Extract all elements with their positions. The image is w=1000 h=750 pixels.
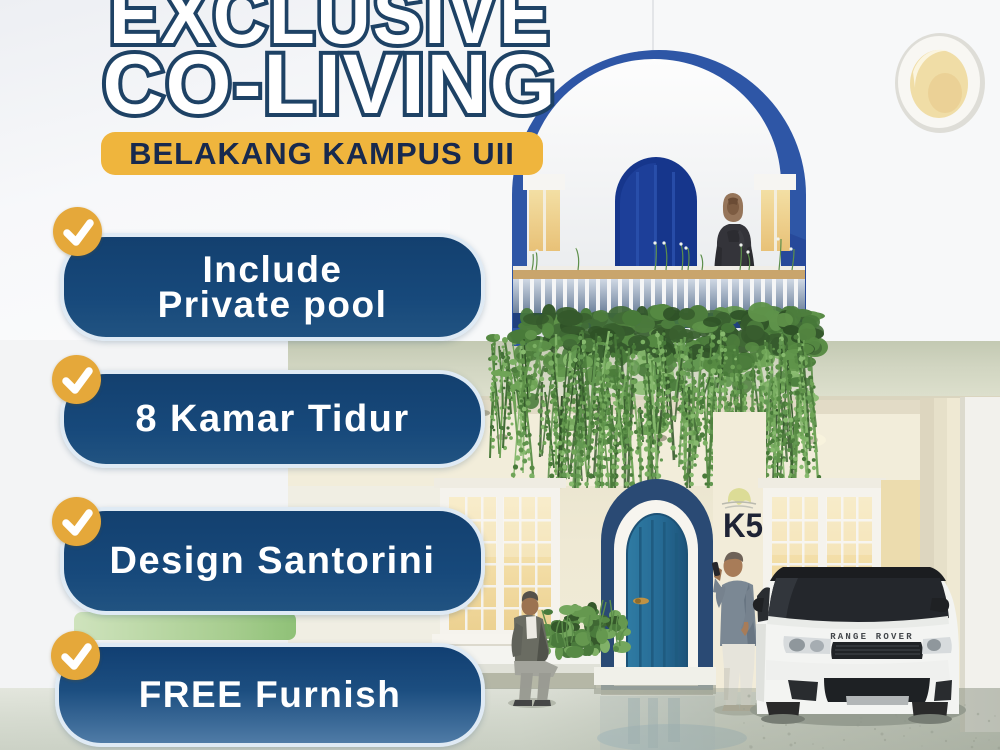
svg-text:CO-LIVING: CO-LIVING (103, 37, 558, 131)
